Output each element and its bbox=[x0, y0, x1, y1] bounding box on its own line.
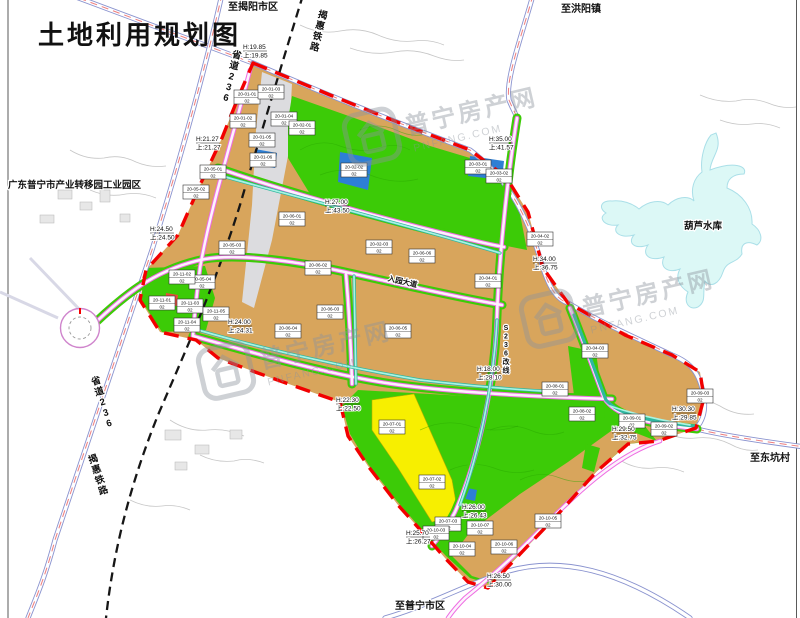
elevation-label: H:26.00上:26.43 bbox=[462, 504, 487, 520]
parcel-class: 02 bbox=[187, 308, 193, 313]
parcel-label: 20-10-0402 bbox=[449, 542, 475, 556]
parcel-code: 20-01-02 bbox=[234, 115, 253, 120]
parcel-label: 20-01-0602 bbox=[250, 153, 276, 167]
parcel-code: 20-01-05 bbox=[253, 134, 272, 139]
building bbox=[100, 190, 110, 202]
elevation-label: H:24.50上:24.50 bbox=[150, 226, 175, 242]
parcel-class: 02 bbox=[315, 270, 321, 275]
elevation-label: H:21.27上:21.27 bbox=[196, 136, 221, 152]
parcel-code: 20-09-03 bbox=[691, 390, 710, 395]
parcel-label: 20-09-0302 bbox=[687, 389, 713, 403]
parcel-class: 02 bbox=[485, 283, 491, 288]
parcel-code: 20-10-05 bbox=[539, 515, 558, 520]
parcel-code: 20-10-04 bbox=[453, 543, 472, 548]
parcel-code: 20-05-02 bbox=[187, 186, 206, 191]
elevation-label: H:18.00上:28.10 bbox=[477, 366, 502, 382]
parcel-class: 02 bbox=[697, 398, 703, 403]
parcel-class: 02 bbox=[159, 305, 165, 310]
parcel-class: 02 bbox=[184, 327, 190, 332]
parcel-code: 20-10-07 bbox=[471, 522, 490, 527]
parcel-label: 20-01-0302 bbox=[258, 85, 284, 99]
elevation-existing: 上:30.00 bbox=[487, 580, 512, 589]
building bbox=[165, 430, 181, 440]
region-label-industrial-park: 广东普宁市产业转移园工业园区 bbox=[8, 179, 142, 191]
parcel-code: 20-04-02 bbox=[531, 233, 550, 238]
region-label-hulu-reservoir: 葫芦水库 bbox=[684, 220, 723, 232]
elevation-label: H:25.70上:26.27 bbox=[406, 530, 431, 546]
parcel-label: 20-08-0102 bbox=[542, 382, 568, 396]
parcel-class: 02 bbox=[244, 99, 250, 104]
parcel-code: 20-11-01 bbox=[153, 297, 171, 302]
parcel-label: 20-11-0302 bbox=[177, 299, 203, 313]
parcel-code: 20-06-02 bbox=[309, 262, 328, 267]
parcel-class: 02 bbox=[376, 249, 382, 254]
parcel-code: 20-11-05 bbox=[207, 308, 225, 313]
parcel-class: 02 bbox=[259, 142, 265, 147]
parcel-label: 20-08-0202 bbox=[569, 407, 595, 421]
parcel-class: 02 bbox=[433, 535, 439, 540]
parcel-label: 20-06-0302 bbox=[317, 305, 343, 319]
parcel-class: 02 bbox=[501, 549, 507, 554]
parcel-class: 02 bbox=[268, 94, 274, 99]
parcel-label: 20-06-0202 bbox=[305, 261, 331, 275]
elevation-label: H:35.00上:41.57 bbox=[489, 136, 514, 152]
parcel-label: 20-09-0202 bbox=[651, 422, 677, 436]
elevation-design: H:24.50 bbox=[150, 226, 173, 233]
parcel-label: 20-01-0202 bbox=[230, 114, 256, 128]
parcel-code: 20-07-03 bbox=[439, 518, 458, 523]
roundabout-circle bbox=[61, 309, 100, 348]
parcel-code: 20-07-01 bbox=[383, 421, 402, 426]
parcel-code: 20-06-05 bbox=[389, 325, 408, 330]
elevation-design: H:35.00 bbox=[489, 136, 512, 143]
parcel-code: 20-11-04 bbox=[178, 319, 196, 324]
elevation-existing: 上:41.57 bbox=[489, 143, 514, 152]
parcel-label: 20-10-0502 bbox=[535, 514, 561, 528]
building bbox=[230, 430, 242, 439]
elevation-design: H:29.50 bbox=[612, 426, 635, 433]
parcel-label: 20-05-0202 bbox=[183, 185, 209, 199]
parcel-class: 02 bbox=[579, 416, 585, 421]
elevation-label: H:30.30上:29.85 bbox=[672, 406, 697, 422]
parcel-label: 20-05-0302 bbox=[219, 241, 245, 255]
parcel-code: 20-09-02 bbox=[655, 423, 674, 428]
elevation-design: H:22.30 bbox=[336, 397, 359, 404]
parcel-label: 20-02-0302 bbox=[366, 240, 392, 254]
parcel-class: 02 bbox=[661, 431, 667, 436]
parcel-code: 20-01-03 bbox=[262, 86, 281, 91]
parcel-class: 02 bbox=[389, 429, 395, 434]
elevation-existing: 上:24.50 bbox=[150, 233, 175, 242]
parcel-class: 02 bbox=[289, 221, 295, 226]
region-label-to-jieyang: 至揭阳市区 bbox=[228, 0, 278, 13]
parcel-label: 20-06-0602 bbox=[409, 249, 435, 263]
elevation-design: H:18.00 bbox=[477, 366, 500, 373]
parcel-class: 02 bbox=[496, 178, 502, 183]
elevation-design: H:25.70 bbox=[406, 530, 429, 537]
parcel-code: 20-05-01 bbox=[204, 166, 223, 171]
parcel-label: 20-11-0502 bbox=[203, 307, 229, 321]
building bbox=[195, 445, 209, 454]
parcel-label: 20-01-0502 bbox=[249, 133, 275, 147]
parcel-code: 20-01-01 bbox=[238, 91, 257, 96]
elevation-existing: 上:26.27 bbox=[406, 537, 431, 546]
parcel-label: 20-05-0102 bbox=[200, 165, 226, 179]
elevation-label: H:22.30上:22.50 bbox=[336, 397, 361, 413]
elevation-design: H:30.30 bbox=[672, 406, 695, 413]
parcel-class: 02 bbox=[351, 172, 357, 177]
parcel-code: 20-08-02 bbox=[573, 408, 592, 413]
parcel-class: 02 bbox=[179, 279, 185, 284]
elevation-label: H:34.00上:36.75 bbox=[533, 256, 558, 272]
elevation-design: H:34.00 bbox=[533, 256, 556, 263]
elevation-design: H:19.85 bbox=[243, 44, 266, 51]
parcel-class: 02 bbox=[545, 523, 551, 528]
parcel-class: 02 bbox=[552, 391, 558, 396]
elevation-design: H:21.27 bbox=[196, 136, 219, 143]
parcel-label: 20-07-0102 bbox=[379, 420, 405, 434]
parcel-code: 20-03-01 bbox=[469, 161, 488, 166]
elevation-existing: 上:36.75 bbox=[533, 263, 558, 272]
elevation-existing: 上:24.31 bbox=[228, 326, 253, 335]
parcel-class: 02 bbox=[229, 250, 235, 255]
parcel-class: 02 bbox=[193, 194, 199, 199]
building bbox=[120, 214, 130, 222]
parcel-code: 20-09-01 bbox=[623, 415, 642, 420]
parcel-class: 02 bbox=[210, 174, 216, 179]
parcel-code: 20-05-04 bbox=[193, 276, 212, 281]
elevation-label: H:26.50上:30.00 bbox=[487, 573, 512, 589]
parcel-class: 02 bbox=[592, 353, 598, 358]
parcel-label: 20-03-0202 bbox=[486, 169, 512, 183]
elevation-existing: 上:43.50 bbox=[325, 206, 350, 215]
building bbox=[80, 202, 92, 210]
elevation-existing: 上:26.43 bbox=[462, 511, 487, 520]
parcel-label: 20-10-0702 bbox=[467, 521, 493, 535]
parcel-label: 20-04-0202 bbox=[527, 232, 553, 246]
parcel-class: 02 bbox=[285, 333, 291, 338]
parcel-class: 02 bbox=[281, 121, 287, 126]
parcel-class: 02 bbox=[199, 284, 205, 289]
parcel-label: 20-11-0202 bbox=[169, 270, 195, 284]
elevation-design: H:24.00 bbox=[228, 319, 251, 326]
elevation-label: H:27.00上:43.50 bbox=[325, 199, 350, 215]
parcel-class: 02 bbox=[260, 162, 266, 167]
map-canvas: 普宁房产网 PNFANG.COM bbox=[0, 0, 800, 618]
parcel-class: 02 bbox=[475, 169, 481, 174]
parcel-label: 20-11-0402 bbox=[174, 318, 200, 332]
parcel-code: 20-02-01 bbox=[293, 122, 312, 127]
parcel-code: 20-06-01 bbox=[283, 213, 302, 218]
parcel-code: 20-11-02 bbox=[173, 271, 191, 276]
elevation-existing: 上:22.50 bbox=[336, 404, 361, 413]
parcel-code: 20-07-02 bbox=[423, 476, 442, 481]
parcel-class: 02 bbox=[395, 333, 401, 338]
parcel-class: 02 bbox=[429, 484, 435, 489]
parcel-label: 20-01-0102 bbox=[234, 90, 260, 104]
parcel-code: 20-08-01 bbox=[546, 383, 565, 388]
elevation-existing: 上:28.10 bbox=[477, 373, 502, 382]
building bbox=[40, 215, 54, 223]
building bbox=[58, 190, 72, 199]
parcel-class: 02 bbox=[327, 314, 333, 319]
parcel-class: 02 bbox=[240, 123, 246, 128]
roundabout bbox=[61, 308, 100, 348]
parcel-class: 02 bbox=[459, 551, 465, 556]
region-label-to-dongkeng: 至东坑村 bbox=[750, 451, 790, 464]
parcel-code: 20-10-03 bbox=[427, 527, 446, 532]
parcel-code: 20-05-03 bbox=[223, 242, 242, 247]
elevation-label: H:19.85上:19.85 bbox=[243, 44, 268, 60]
parcel-class: 02 bbox=[537, 241, 543, 246]
parcel-code: 20-01-06 bbox=[254, 154, 273, 159]
elevation-existing: 上:19.85 bbox=[243, 51, 268, 60]
elevation-existing: 上:29.85 bbox=[672, 413, 697, 422]
parcel-class: 02 bbox=[299, 130, 305, 135]
elevation-design: H:26.00 bbox=[462, 504, 485, 511]
parcel-label: 20-04-0102 bbox=[475, 274, 501, 288]
parcel-code: 20-10-06 bbox=[495, 541, 514, 546]
parcel-code: 20-06-03 bbox=[321, 306, 340, 311]
parcel-class: 02 bbox=[213, 316, 219, 321]
parcel-code: 20-03-02 bbox=[490, 170, 509, 175]
parcel-label: 20-06-0402 bbox=[275, 324, 301, 338]
parcel-code: 20-04-03 bbox=[586, 345, 605, 350]
building bbox=[175, 462, 187, 470]
page-title: 土地利用规划图 bbox=[38, 20, 241, 50]
region-label-to-hongyang: 至洪阳镇 bbox=[561, 2, 601, 15]
elevation-label: H:29.50上:32.75 bbox=[612, 426, 637, 442]
parcel-code: 20-06-06 bbox=[413, 250, 432, 255]
land-use-planning-map[interactable]: 普宁房产网 PNFANG.COM bbox=[0, 0, 800, 618]
region-label-to-puning: 至普宁市区 bbox=[395, 599, 445, 612]
parcel-label: 20-07-0202 bbox=[419, 475, 445, 489]
elevation-existing: 上:32.75 bbox=[612, 433, 637, 442]
parcel-label: 20-02-0102 bbox=[289, 121, 315, 135]
elevation-existing: 上:21.27 bbox=[196, 143, 221, 152]
parcel-code: 20-11-03 bbox=[181, 300, 199, 305]
parcel-class: 02 bbox=[419, 258, 425, 263]
parcel-code: 20-04-01 bbox=[479, 275, 498, 280]
parcel-code: 20-06-04 bbox=[279, 325, 298, 330]
parcel-label: 20-10-0602 bbox=[491, 540, 517, 554]
elevation-design: H:26.50 bbox=[487, 573, 510, 580]
parcel-code: 20-02-03 bbox=[370, 241, 389, 246]
elevation-label: H:24.00上:24.31 bbox=[228, 319, 253, 335]
parcel-label: 20-06-0102 bbox=[279, 212, 305, 226]
parcel-class: 02 bbox=[477, 530, 483, 535]
parcel-label: 20-11-0102 bbox=[149, 296, 175, 310]
parcel-label: 20-04-0302 bbox=[582, 344, 608, 358]
elevation-design: H:27.00 bbox=[325, 199, 348, 206]
parcel-code: 20-01-04 bbox=[275, 113, 294, 118]
